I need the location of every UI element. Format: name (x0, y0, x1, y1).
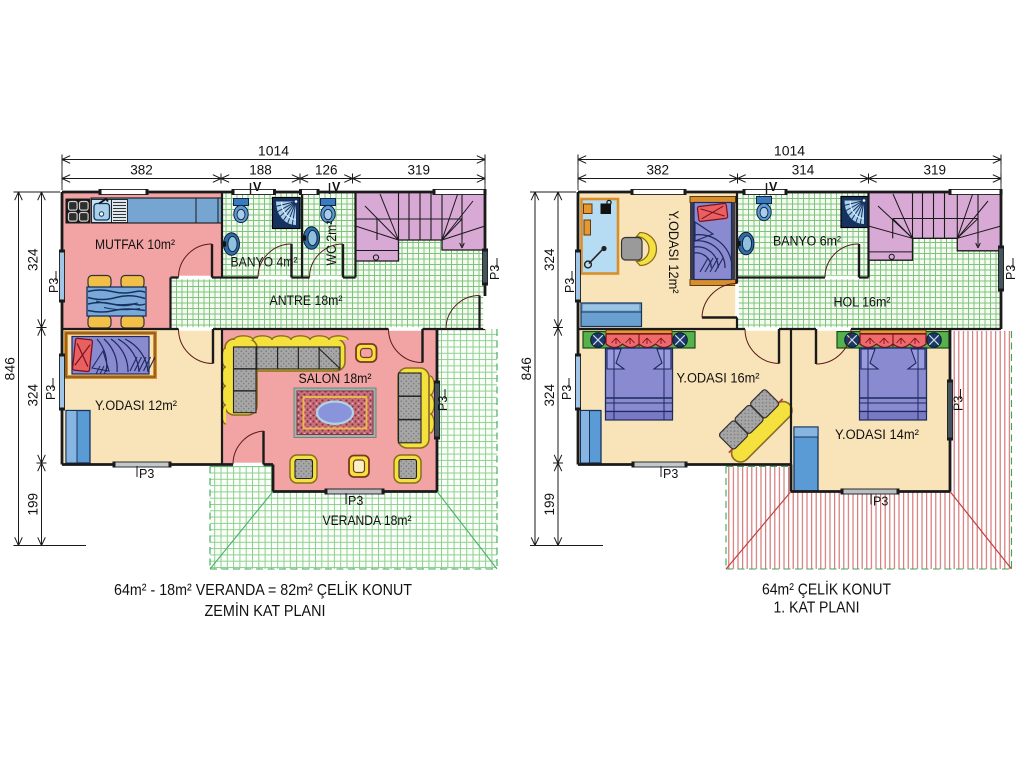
svg-text:VERANDA 18m²: VERANDA 18m² (323, 513, 412, 528)
svg-text:P3: P3 (44, 385, 58, 400)
svg-text:314: 314 (792, 163, 815, 178)
svg-text:V: V (769, 180, 778, 194)
svg-text:BANYO 6m²: BANYO 6m² (773, 234, 841, 249)
svg-text:199: 199 (542, 493, 557, 516)
svg-text:846: 846 (2, 357, 18, 381)
svg-text:Y.ODASI 12m²: Y.ODASI 12m² (666, 211, 681, 294)
svg-text:SALON 18m²: SALON 18m² (299, 371, 372, 386)
svg-text:Y.ODASI 16m²: Y.ODASI 16m² (677, 371, 760, 386)
svg-text:P3: P3 (952, 396, 966, 411)
svg-text:324: 324 (542, 248, 557, 271)
svg-text:319: 319 (407, 163, 430, 178)
svg-text:126: 126 (315, 163, 338, 178)
svg-text:324: 324 (26, 248, 41, 271)
svg-text:382: 382 (130, 163, 153, 178)
svg-text:319: 319 (923, 163, 946, 178)
svg-text:P3: P3 (139, 467, 154, 481)
svg-text:188: 188 (249, 163, 272, 178)
svg-text:ANTRE 18m²: ANTRE 18m² (270, 293, 343, 308)
svg-text:1014: 1014 (258, 143, 289, 159)
svg-text:324: 324 (542, 383, 557, 406)
svg-text:MUTFAK 10m²: MUTFAK 10m² (95, 237, 175, 252)
svg-text:P3: P3 (1004, 265, 1018, 280)
svg-text:64m² ÇELİK KONUT: 64m² ÇELİK KONUT (762, 580, 891, 599)
svg-text:1014: 1014 (774, 143, 805, 159)
svg-text:HOL 16m²: HOL 16m² (834, 295, 891, 310)
svg-text:BANYO 4m²: BANYO 4m² (231, 255, 298, 270)
svg-text:P3: P3 (873, 495, 888, 509)
svg-text:P3: P3 (47, 278, 61, 293)
svg-text:Y.ODASI 12m²: Y.ODASI 12m² (95, 398, 177, 413)
svg-text:V: V (332, 180, 341, 194)
svg-text:846: 846 (518, 357, 534, 381)
svg-text:P3: P3 (560, 385, 574, 400)
svg-text:1. KAT PLANI: 1. KAT PLANI (774, 600, 860, 617)
svg-text:ZEMİN KAT PLANI: ZEMİN KAT PLANI (205, 601, 326, 620)
svg-text:64m² - 18m² VERANDA = 82m² ÇEL: 64m² - 18m² VERANDA = 82m² ÇELİK KONUT (114, 580, 412, 599)
svg-text:WC 2m²: WC 2m² (324, 220, 339, 265)
svg-text:P3: P3 (663, 467, 678, 481)
svg-text:V: V (253, 180, 262, 194)
svg-text:P3: P3 (348, 494, 363, 508)
svg-text:P3: P3 (488, 265, 502, 280)
svg-text:324: 324 (26, 383, 41, 406)
svg-text:199: 199 (26, 493, 41, 516)
svg-text:P3: P3 (436, 396, 450, 411)
svg-text:Y.ODASI 14m²: Y.ODASI 14m² (835, 427, 919, 442)
svg-text:382: 382 (646, 163, 669, 178)
svg-text:P3: P3 (563, 278, 577, 293)
